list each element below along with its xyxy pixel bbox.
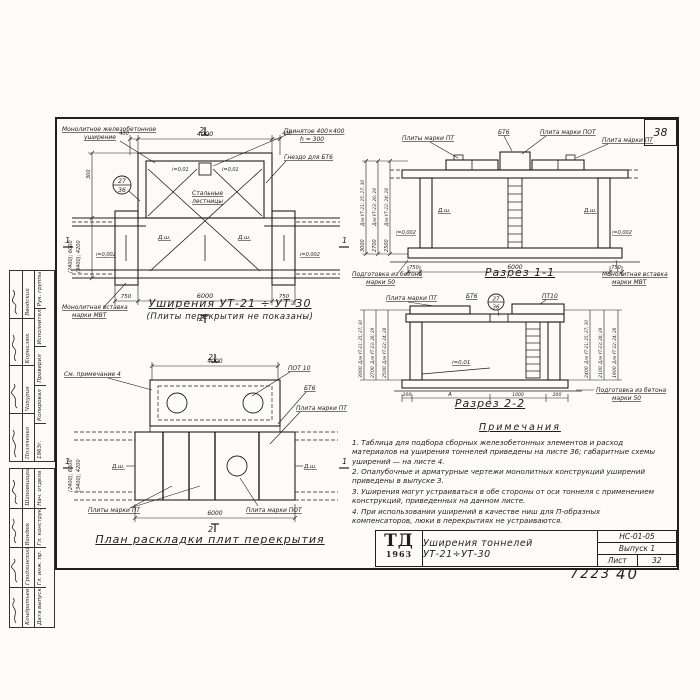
section-2-2-caption: Разрез 2-2 [430,397,550,410]
svg-text:См. примечание 4: См. примечание 4 [64,371,121,378]
signature-squiggle [10,319,22,367]
detail-reference-bubble: 27 36 [113,176,140,201]
document-code: НС-01-05 [598,531,676,543]
svg-text:Плиты марки ПТ: Плиты марки ПТ [402,135,455,142]
slab-layout-caption: План раскладки плит перекрытия [75,533,345,546]
names-row: Шаповницкий Вандюк Гридзинский Кондратье… [23,469,35,627]
stamp-role: Дата выпуска [35,588,46,627]
svg-text:i=0,01: i=0,01 [452,360,470,366]
svg-text:1: 1 [342,236,347,245]
svg-text:1: 1 [65,457,70,466]
section-labels: Плиты марки ПТ БТ6 Плита марки ПОТ Плита… [352,129,668,286]
stamp-name: Шаповницкий [23,469,34,509]
rotated-dimension-lines-left: Для УТ-21; 25; 27; 30 Для УТ-23; 26; 29 … [358,310,410,380]
signature-squiggle [10,549,22,589]
stamp-name: Вводский [23,271,34,319]
svg-text:Монолитная вставка: Монолитная вставка [62,304,128,311]
drawing-title: Уширения тоннелей УТ-21÷УТ-30 [423,531,598,566]
svg-text:Плиты марки ПТ: Плиты марки ПТ [88,507,141,514]
stamp-name: Чапурин [23,367,34,415]
signature-squiggle [10,367,22,415]
detail-reference-bubble: 27 36 [488,294,504,316]
svg-text:200: 200 [403,392,412,398]
svg-text:ПОТ 10: ПОТ 10 [288,365,311,372]
names-row: Вводский Корнилюк Чапурин Поляченко [23,271,35,461]
svg-text:БТ6: БТ6 [304,385,316,392]
roles-row: Рук. группы Исполнитель Проверил Копиров… [35,271,46,461]
svg-text:Для УТ-23; 26; 29: Для УТ-23; 26; 29 [598,327,603,365]
svg-text:Д.ш.: Д.ш. [237,235,251,241]
logo-year: 1963 [376,550,422,558]
svg-text:6000: 6000 [207,510,222,517]
svg-text:Подготовка из бетона: Подготовка из бетона [596,387,667,394]
svg-text:1900: 1900 [612,366,618,378]
svg-text:Для УТ-21; 25; 27; 30: Для УТ-21; 25; 27; 30 [584,320,589,365]
title-block: ТД 1963 Уширения тоннелей УТ-21÷УТ-30 НС… [375,530,677,567]
handwritten-number-left: 7223 [570,567,611,582]
signature-squiggle [10,588,22,627]
signature-row [10,271,23,461]
svg-text:Плита марки ПОТ: Плита марки ПОТ [540,129,597,136]
roles-row: Нач. отдела Гл. конструктор Гл. инж. пр.… [35,469,46,627]
svg-text:Плита марки ПТ: Плита марки ПТ [386,295,438,302]
svg-text:марки МВТ: марки МВТ [612,279,648,286]
svg-text:1: 1 [342,457,347,466]
svg-text:Для УТ-22; 24; 28: Для УТ-22; 24; 28 [382,327,387,365]
section-2-2-drawing: Для УТ-21; 25; 27; 30 Для УТ-23; 26; 29 … [350,292,678,404]
stamp-role: Проверил [35,347,46,385]
svg-text:Принятое 400×400: Принятое 400×400 [284,128,345,135]
svg-text:Монолитное железобетонное: Монолитное железобетонное [62,126,156,133]
upper-slab-outline [150,380,280,432]
svg-text:Д.ш.: Д.ш. [303,464,317,470]
svg-text:Для УТ-22; 24; 28: Для УТ-22; 24; 28 [612,327,617,365]
stamp-role: Гл. инж. пр. [35,549,46,589]
svg-text:36: 36 [493,305,500,311]
section-1-1-caption: Разрез 1-1 [460,266,580,279]
svg-text:2: 2 [199,126,204,135]
stamp-name: Корнилюк [23,319,34,367]
stamp-name: Кондратьев [23,588,34,627]
stamp-name: Гридзинский [23,549,34,589]
logo-text: ТД [376,533,422,550]
svg-text:750: 750 [409,265,419,271]
svg-text:лестницы: лестницы [191,198,223,205]
svg-text:2700: 2700 [372,239,378,252]
svg-text:3000: 3000 [360,239,366,252]
svg-text:БТ6: БТ6 [466,293,478,300]
organization-logo: ТД 1963 [376,531,423,566]
svg-text:Для УТ-23; 26; 29: Для УТ-23; 26; 29 [370,327,375,365]
svg-text:(3400); 4200: (3400); 4200 [76,459,82,492]
svg-text:2: 2 [208,353,213,362]
svg-text:h = 300: h = 300 [300,136,324,143]
svg-text:Для УТ-21; 25; 27; 30: Для УТ-21; 25; 27; 30 [360,180,365,227]
svg-text:i=0,002: i=0,002 [396,230,416,236]
handwritten-number-right: 40 [616,565,639,583]
svg-text:2700: 2700 [370,366,376,378]
signature-squiggle [10,469,22,509]
section-structure [394,304,582,391]
svg-text:2500: 2500 [384,239,390,252]
svg-text:i=0,01: i=0,01 [172,167,189,173]
svg-text:2100: 2100 [598,366,604,378]
svg-text:марки МВТ: марки МВТ [72,312,108,319]
svg-text:2400: 2400 [584,366,590,378]
plan-widening-caption: Уширения УТ-21 ÷ УТ-30 [125,297,335,310]
note-item: 4. При использовании уширений в качестве… [352,507,660,526]
svg-text:БТ6: БТ6 [498,129,510,136]
stamp-year: 1963г. [35,424,46,461]
note-item: 2. Опалубочные и арматурные чертежи моно… [352,467,660,486]
svg-text:Плита марки ПОТ: Плита марки ПОТ [246,507,303,514]
svg-text:i=0,002: i=0,002 [96,252,116,258]
signature-squiggle [10,414,22,461]
stamp-role: Нач. отдела [35,469,46,509]
stamp-table-chiefs: Шаповницкий Вандюк Гридзинский Кондратье… [9,468,55,628]
stamp-role: Копировал [35,386,46,424]
svg-text:ПТ10: ПТ10 [542,293,558,300]
svg-text:1: 1 [65,236,70,245]
notes-title: Примечания [400,422,640,433]
dimension-texts: 400 4000 400 750 6000 750 300 (2400); 60… [68,130,292,300]
slab-layout-plan-drawing: 4000 См. примечание 4 ПОТ 10 БТ6 Плита м… [60,352,352,534]
svg-text:Д.ш.: Д.ш. [583,208,597,214]
svg-text:Плита марки ПТ: Плита марки ПТ [296,405,348,412]
svg-text:i=0,002: i=0,002 [612,230,632,236]
drawing-sheet-page: { "sheet": { "corner_number": "38", "han… [0,0,700,700]
sheet-value: 32 [638,555,677,566]
svg-text:Стальные: Стальные [192,190,223,197]
note-item: 1. Таблица для подбора сборных железобет… [352,438,660,466]
svg-text:i=0,01: i=0,01 [222,167,239,173]
svg-text:27: 27 [118,178,126,185]
signature-row [10,469,23,627]
svg-text:уширение: уширение [83,134,116,141]
issue-number: Выпуск 1 [598,543,676,555]
svg-text:750: 750 [611,265,621,271]
svg-text:300: 300 [86,169,92,179]
signature-squiggle [10,271,22,319]
plan-widening-subcaption: (Плиты перекрытия не показаны) [125,312,335,322]
section-structure [390,152,640,262]
svg-text:27: 27 [493,297,500,303]
svg-text:3000: 3000 [358,366,364,378]
svg-text:Для УТ-22; 24; 28: Для УТ-22; 24; 28 [384,188,389,227]
stamp-name: Поляченко [23,414,34,461]
signature-squiggle [10,509,22,549]
svg-text:Гнездо для БТ6: Гнездо для БТ6 [284,154,333,161]
stamp-name: Вандюк [23,509,34,549]
section-1-1-drawing: Для УТ-21; 25; 27; 30 Для УТ-23; 26; 29 … [350,126,678,288]
svg-text:36: 36 [118,187,126,194]
svg-text:Д.ш.: Д.ш. [111,464,125,470]
svg-text:Для УТ-21; 25; 27; 30: Для УТ-21; 25; 27; 30 [358,320,363,365]
rotated-dimension-texts: Для УТ-21; 25; 27; 30 Для УТ-23; 26; 29 … [360,180,390,252]
notes-list: 1. Таблица для подбора сборных железобет… [352,437,660,526]
svg-text:Для УТ-23; 26; 29: Для УТ-23; 26; 29 [372,188,377,227]
svg-text:Д.ш.: Д.ш. [157,235,171,241]
svg-text:(2400); 6000: (2400); 6000 [68,240,74,273]
svg-text:Д.ш.: Д.ш. [437,208,451,214]
stamp-role: Исполнитель [35,309,46,347]
svg-text:(3400); 4200: (3400); 4200 [76,240,82,273]
title-block-right-column: НС-01-05 Выпуск 1 Лист 32 [598,531,676,566]
stamp-role: Гл. конструктор [35,509,46,549]
svg-text:марки 50: марки 50 [366,279,395,286]
note-item: 3. Уширения могут устраиваться в обе сто… [352,487,660,506]
svg-text:200: 200 [553,392,562,398]
svg-text:марки 50: марки 50 [612,395,641,402]
svg-text:2500: 2500 [382,366,388,378]
stamp-table-executors: Вводский Корнилюк Чапурин Поляченко Рук.… [9,270,55,462]
svg-text:i=0,002: i=0,002 [300,252,320,258]
rotated-dimension-lines-right: Для УТ-21; 25; 27; 30 Для УТ-23; 26; 29 … [564,310,622,380]
stamp-role: Рук. группы [35,271,46,309]
rotated-outer-dims: (2400); 6000 (3400); 4200 [68,459,82,492]
svg-text:Плита марки ПТ: Плита марки ПТ [602,137,654,144]
